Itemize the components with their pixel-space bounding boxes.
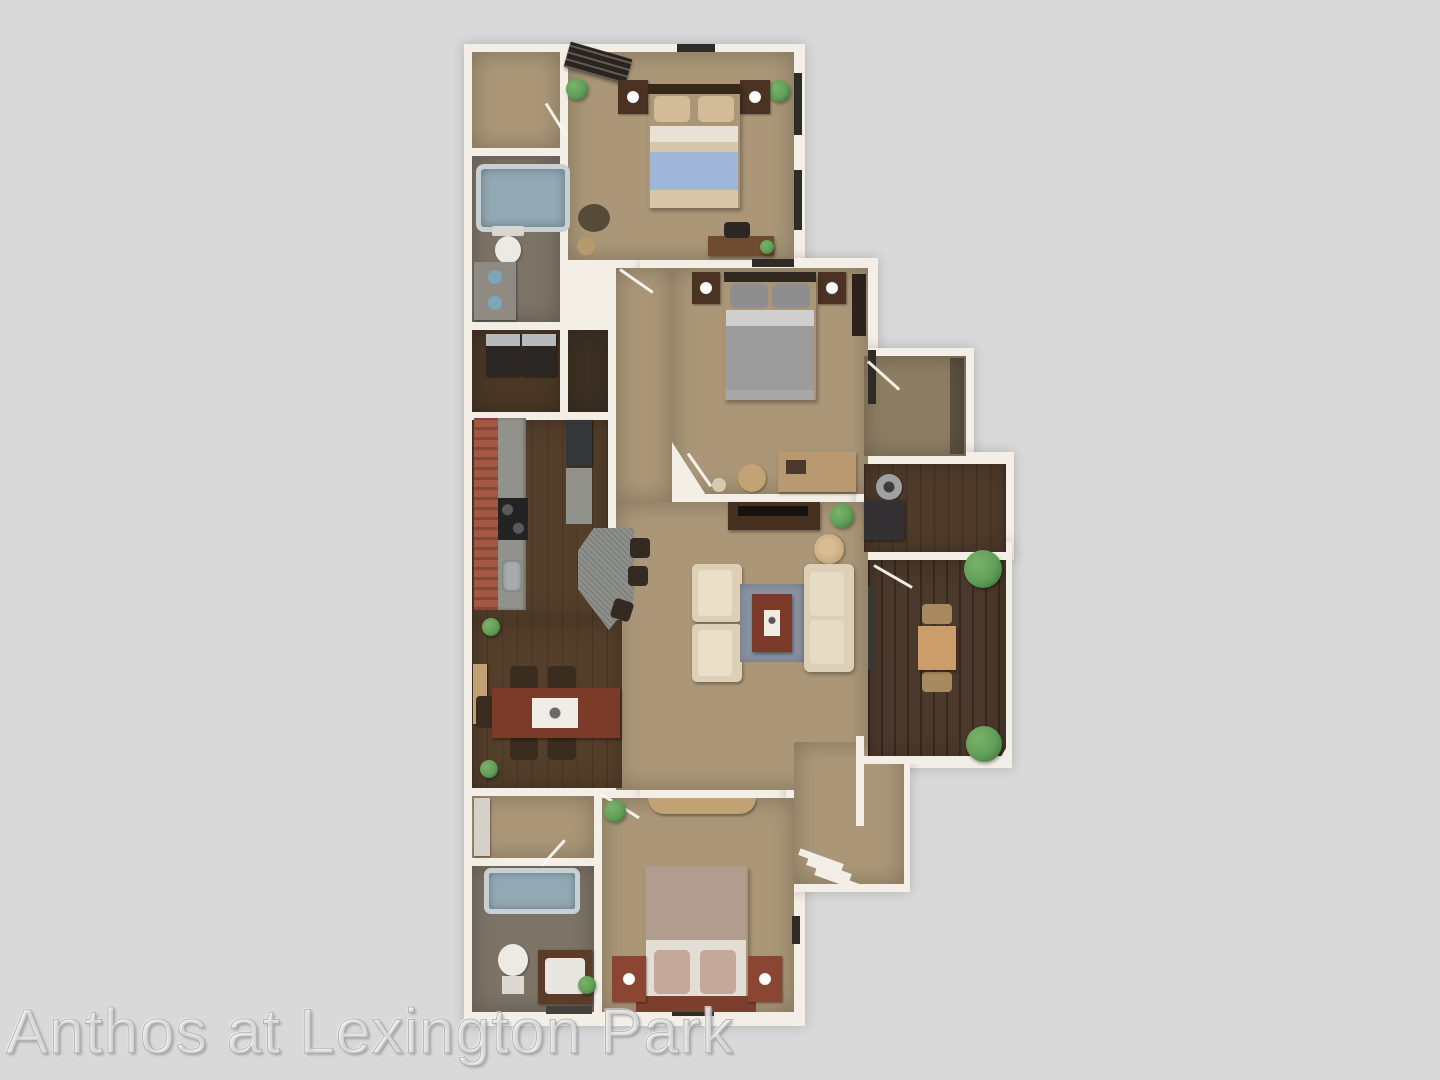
desk-chair (724, 222, 750, 238)
refrigerator (566, 420, 592, 466)
toilet-bowl (495, 236, 521, 264)
plant (760, 240, 774, 254)
bush (966, 726, 1002, 762)
tv-console (728, 502, 820, 530)
sheet-fold (726, 310, 814, 326)
stool (712, 478, 726, 492)
closet-shelving (950, 358, 964, 454)
pillow (698, 96, 734, 122)
patio-chair (922, 672, 952, 692)
washer (486, 334, 520, 376)
patio-chair (922, 604, 952, 624)
lamp-icon (700, 282, 712, 294)
wall-entry-divider (856, 736, 864, 826)
desk-chair (738, 464, 766, 492)
dining-chair (548, 666, 576, 690)
bathtub (484, 868, 580, 914)
toilet (492, 226, 524, 236)
tv-screen (738, 506, 808, 516)
bed-mauve (644, 866, 748, 1006)
blanket-blue (650, 152, 738, 192)
floor-utility-closet (568, 330, 608, 412)
plant (482, 618, 500, 636)
office-desk (864, 500, 904, 540)
pillow (772, 284, 810, 308)
bed-foot (726, 390, 814, 400)
armchair (692, 624, 742, 682)
blanket-mauve (646, 866, 746, 942)
console-table (648, 798, 756, 814)
nightstand (692, 272, 720, 304)
cabinet-run (474, 418, 498, 610)
bed-gray (724, 272, 816, 400)
lamp-icon (759, 973, 771, 985)
patio-table (918, 626, 956, 670)
nightstand (818, 272, 846, 304)
armchair (692, 564, 742, 622)
bar-stool (628, 566, 648, 586)
bush (964, 550, 1002, 588)
ottoman (577, 237, 595, 255)
plant (768, 80, 790, 102)
linen-cabinet (474, 798, 490, 856)
office-chair (876, 474, 902, 500)
table-runner (532, 698, 578, 728)
nightstand (618, 80, 648, 114)
dining-chair (510, 736, 538, 760)
lamp-icon (826, 282, 838, 294)
sofa (804, 564, 854, 672)
chair-cushion (698, 630, 732, 676)
headboard (648, 84, 740, 94)
sink (488, 296, 502, 310)
side-table (814, 534, 844, 564)
floor-plan-render: Anthos at Lexington Park (0, 0, 1440, 1080)
toilet-bowl (498, 944, 528, 976)
pillow (700, 950, 736, 994)
sink (488, 270, 502, 284)
dryer (522, 334, 556, 376)
lamp-icon (749, 91, 761, 103)
pillow (654, 950, 690, 994)
plant (830, 504, 854, 528)
lamp-icon (627, 91, 639, 103)
pillow (654, 96, 690, 122)
watermark-text: Anthos at Lexington Park (6, 996, 734, 1068)
pillow (730, 284, 768, 308)
vanity-double (474, 262, 516, 320)
coffee-table (752, 594, 792, 652)
plant (578, 976, 596, 994)
table-decor (764, 610, 780, 636)
door-bedroom3-right (792, 916, 800, 944)
counter-right (566, 468, 592, 524)
sliding-door-patio (868, 586, 876, 670)
dining-table (492, 688, 620, 738)
floor-closet-3 (472, 796, 594, 858)
window-bedroom2-top (752, 259, 794, 267)
bathtub (476, 164, 570, 232)
area-rug (578, 204, 610, 232)
window-bedroom1-right-2 (794, 170, 802, 230)
sofa-cushion (810, 620, 844, 664)
dining-chair (510, 666, 538, 690)
bed-foot (650, 190, 738, 208)
window-bedroom1-top (677, 44, 715, 52)
plant (480, 760, 498, 778)
door-bedroom2-right (868, 350, 876, 404)
nightstand (740, 80, 770, 114)
plant (566, 78, 588, 100)
kitchen-sink (502, 560, 522, 592)
headboard (724, 272, 816, 282)
floor-hallway (616, 268, 672, 502)
desk-items (786, 460, 806, 474)
dining-chair (548, 736, 576, 760)
bar-stool (630, 538, 650, 558)
stove (498, 498, 528, 540)
bed-blue (648, 84, 740, 208)
desk (778, 452, 856, 492)
plant (604, 800, 626, 822)
nightstand (748, 956, 782, 1002)
window-bedroom1-right-1 (794, 73, 802, 135)
chair-cushion (698, 570, 732, 616)
blanket-gray (726, 326, 814, 390)
toilet-base (502, 976, 524, 994)
sofa-cushion (810, 572, 844, 616)
dresser (852, 274, 866, 336)
floor-flex-room (472, 52, 560, 148)
lamp-icon (623, 973, 635, 985)
